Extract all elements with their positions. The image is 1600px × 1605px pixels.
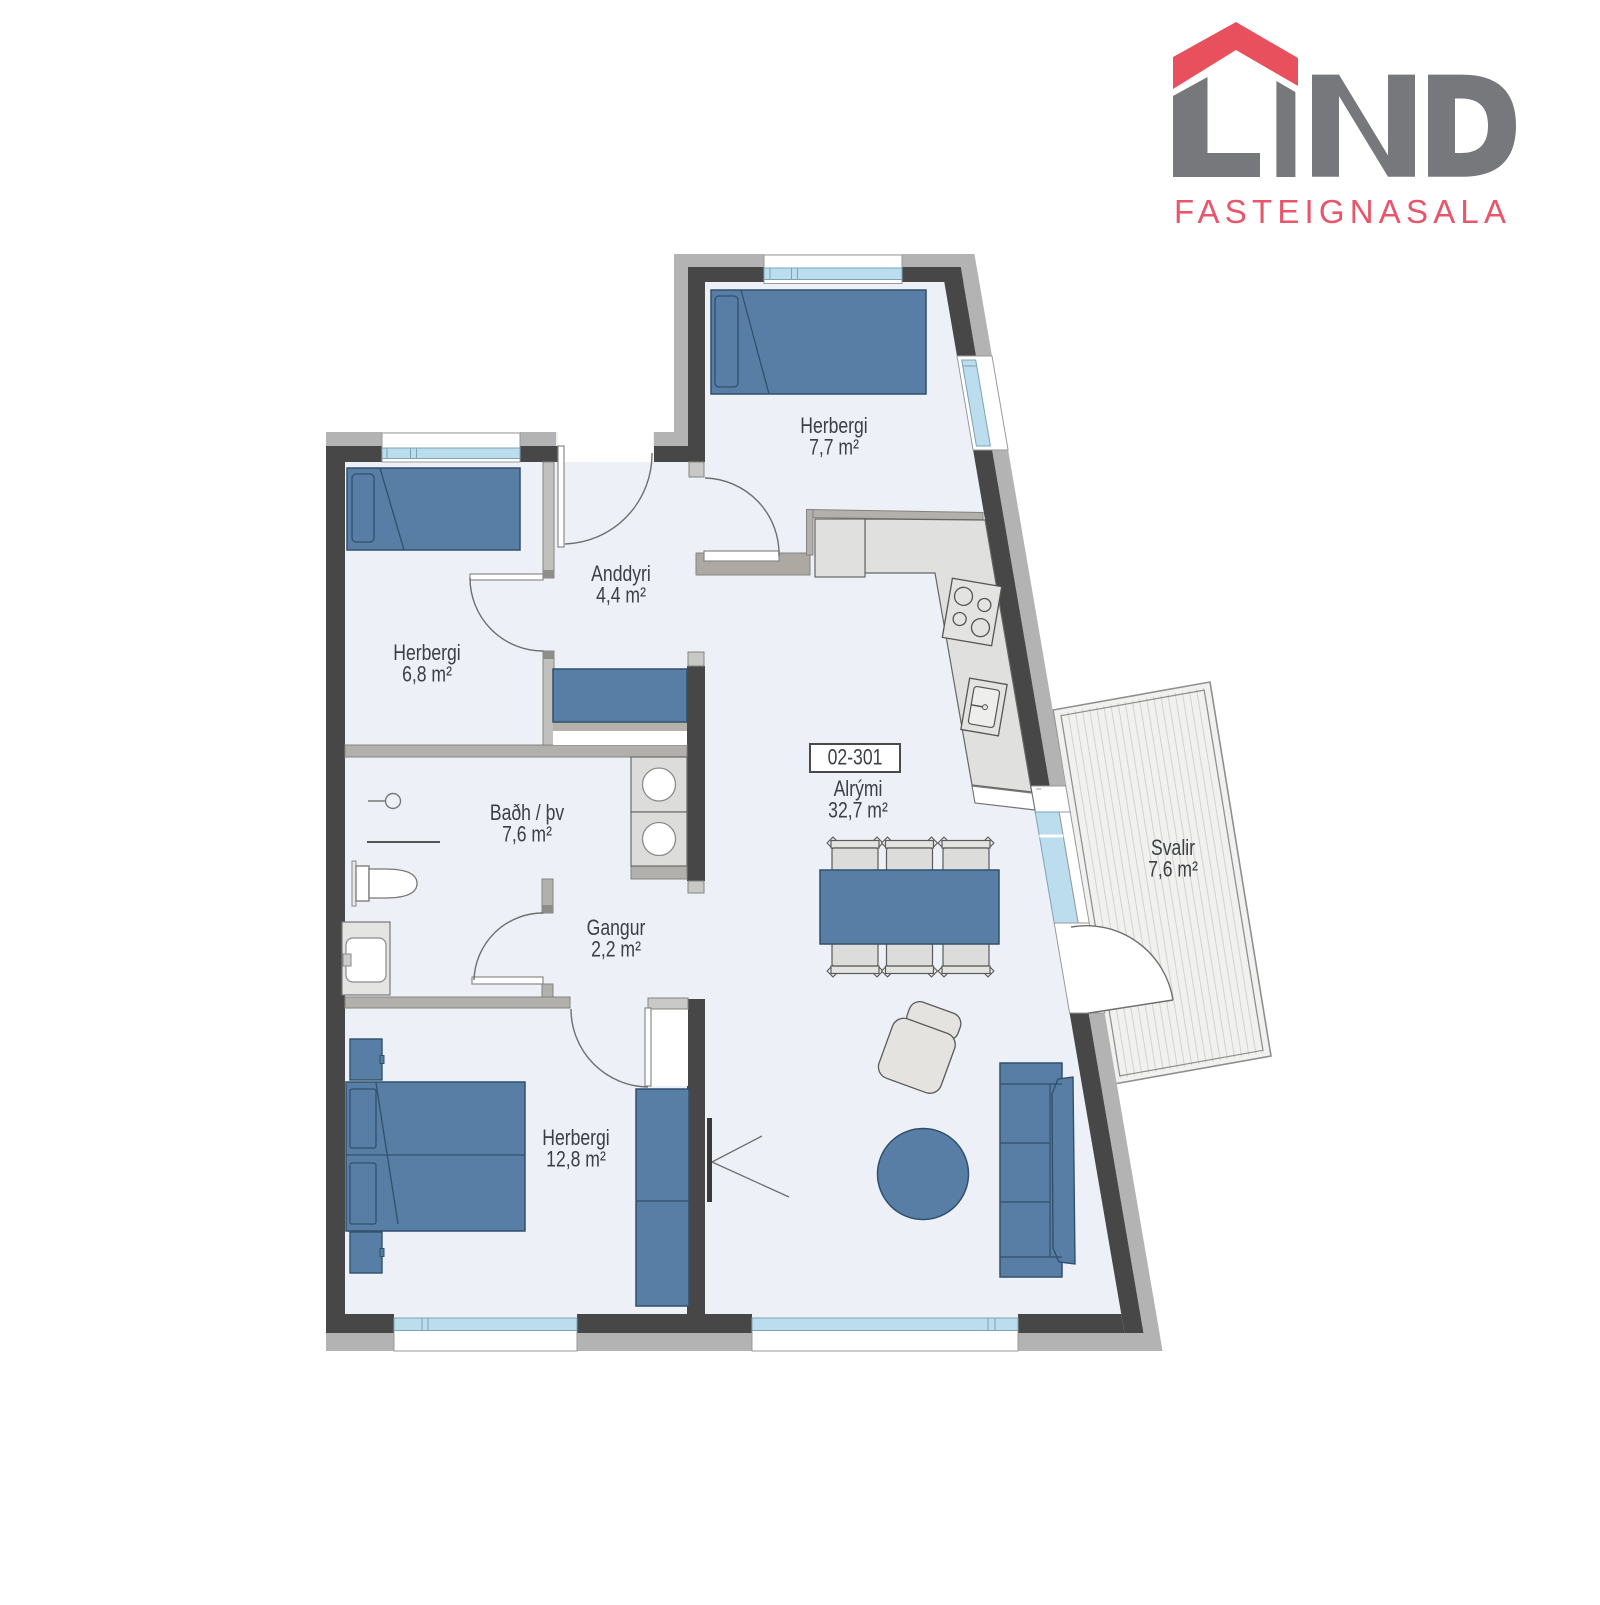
svg-text:7,6 m²: 7,6 m² (1148, 858, 1198, 882)
svg-text:7,6 m²: 7,6 m² (502, 823, 552, 847)
svg-text:7,7 m²: 7,7 m² (809, 436, 859, 460)
svg-text:32,7 m²: 32,7 m² (828, 799, 888, 823)
svg-text:6,8 m²: 6,8 m² (402, 663, 452, 687)
svg-text:12,8 m²: 12,8 m² (546, 1148, 606, 1172)
svg-text:FASTEIGNASALA: FASTEIGNASALA (1174, 193, 1511, 230)
svg-text:02-301: 02-301 (828, 746, 883, 770)
svg-text:4,4 m²: 4,4 m² (596, 584, 646, 608)
svg-text:2,2 m²: 2,2 m² (591, 938, 641, 962)
